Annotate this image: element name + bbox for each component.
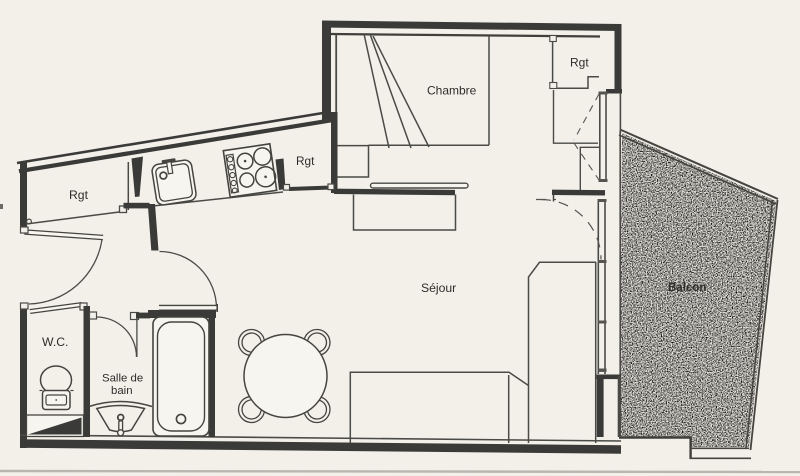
svg-text:Rgt: Rgt <box>296 154 315 168</box>
svg-text:W.C.: W.C. <box>42 335 68 349</box>
svg-text:Balcon: Balcon <box>668 282 706 294</box>
svg-text:Rgt: Rgt <box>570 56 589 70</box>
svg-text:Rgt: Rgt <box>69 188 89 202</box>
svg-text:Chambre: Chambre <box>427 84 477 98</box>
svg-text:Séjour: Séjour <box>421 281 456 295</box>
svg-text:bain: bain <box>111 385 133 397</box>
svg-text:Salle de: Salle de <box>102 373 143 385</box>
